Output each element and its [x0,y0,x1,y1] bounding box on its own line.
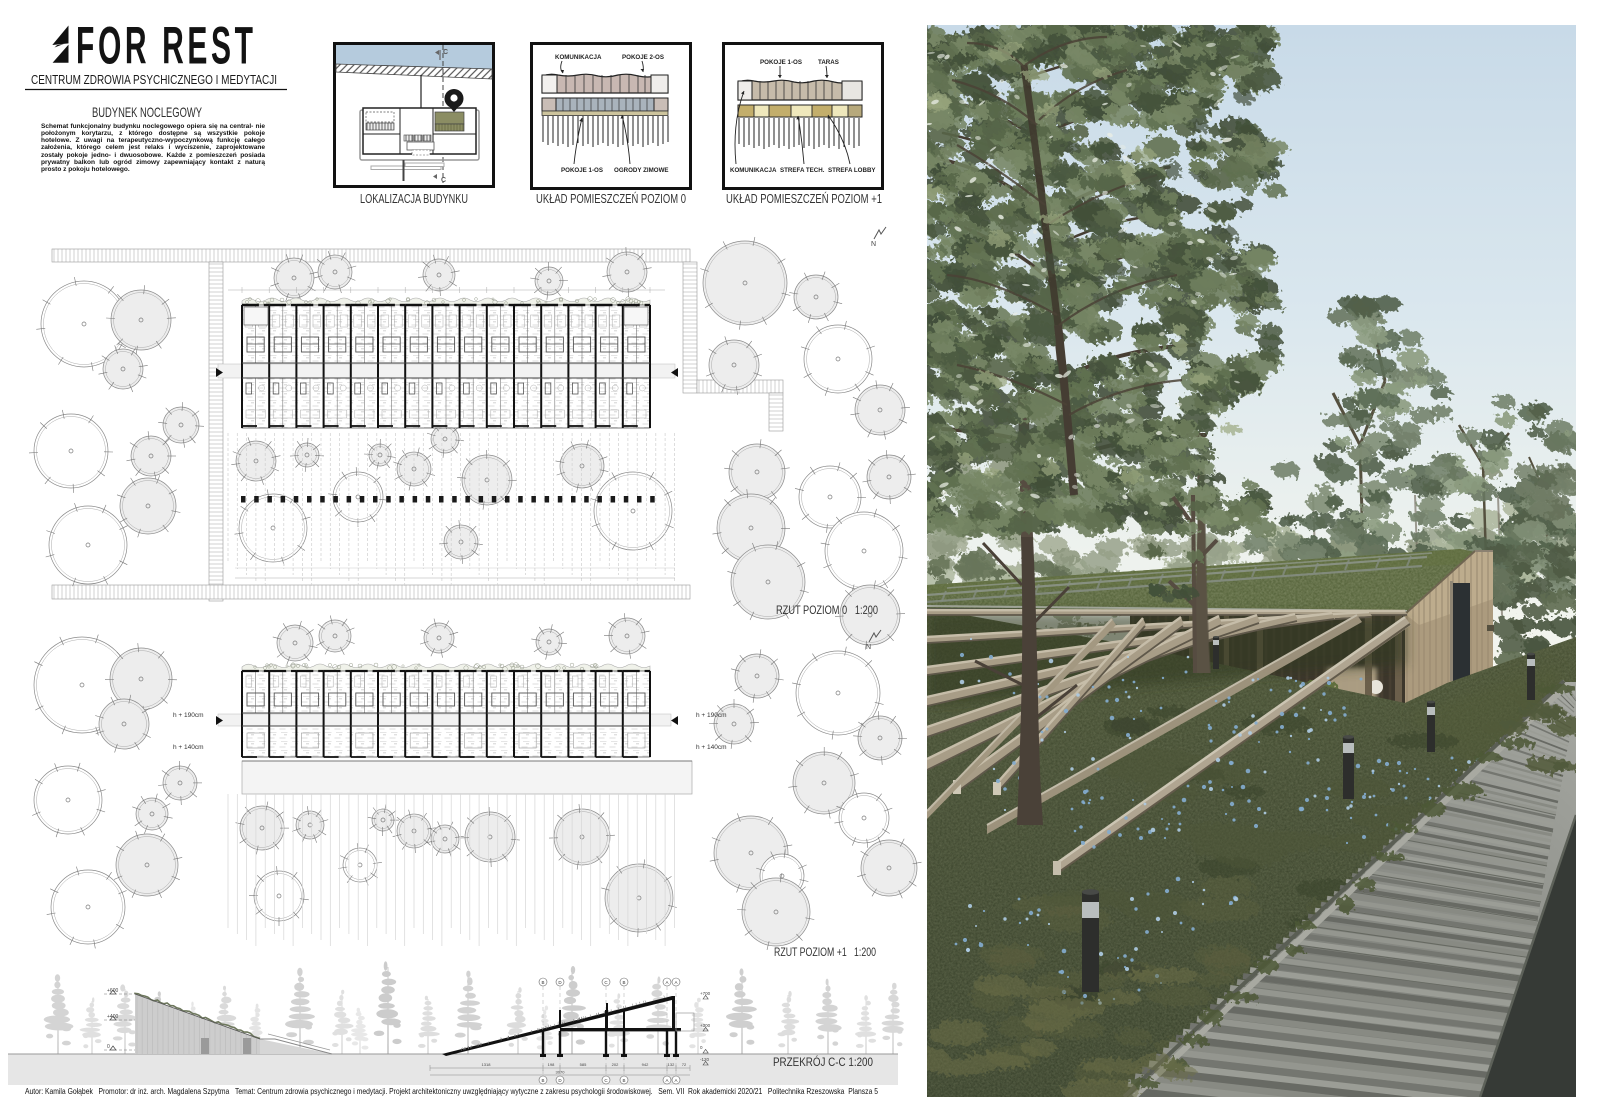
svg-text:LOKALIZACJA BUDYNKU: LOKALIZACJA BUDYNKU [360,192,468,206]
svg-text:202: 202 [612,1062,619,1067]
svg-text:FOR REST: FOR REST [76,17,253,76]
svg-text:A: A [665,980,668,985]
svg-text:132: 132 [668,1062,675,1067]
svg-text:B: B [622,980,625,985]
svg-text:BUDYNEK NOCLEGOWY: BUDYNEK NOCLEGOWY [92,104,202,120]
svg-text:72: 72 [682,1062,687,1067]
svg-text:PRZEKRÓJ C-C 1:200: PRZEKRÓJ C-C 1:200 [773,1054,873,1069]
svg-text:Autor: Kamila Gołąbek Promot: Autor: Kamila Gołąbek Promotor: dr inż. … [25,1086,878,1096]
svg-text:UKŁAD POMIESZCZEŃ POZIOM +1: UKŁAD POMIESZCZEŃ POZIOM +1 [726,191,882,206]
svg-text:POKOJE 2-OS: POKOJE 2-OS [622,54,664,61]
svg-text:TARAS: TARAS [818,59,839,66]
svg-text:POKOJE 1-OS: POKOJE 1-OS [760,59,802,66]
svg-text:B: B [541,980,544,985]
svg-text:+300: +300 [700,1023,711,1028]
svg-text:CENTRUM ZDROWIA PSYCHICZNEGO I: CENTRUM ZDROWIA PSYCHICZNEGO I MEDYTACJI [31,72,277,87]
svg-text:0: 0 [107,1044,110,1050]
svg-text:h + 190cm: h + 190cm [173,712,204,719]
svg-text:+700: +700 [700,991,711,996]
svg-text:h + 140cm: h + 140cm [173,744,204,751]
svg-text:C: C [441,177,446,184]
svg-text:RZUT POZIOM 0 1:200: RZUT POZIOM 0 1:200 [776,605,878,617]
svg-text:+600: +600 [107,988,118,994]
svg-text:UKŁAD POMIESZCZEŃ POZIOM 0: UKŁAD POMIESZCZEŃ POZIOM 0 [536,191,686,206]
svg-text:STREFA TECH.: STREFA TECH. [780,167,825,174]
svg-text:1318: 1318 [482,1062,492,1067]
svg-text:A: A [674,980,677,985]
svg-text:942: 942 [642,1062,649,1067]
svg-text:POKOJE 1-OS: POKOJE 1-OS [561,167,603,174]
svg-text:STREFA LOBBY: STREFA LOBBY [828,167,876,174]
svg-text:N: N [866,644,871,651]
svg-text:198: 198 [548,1062,555,1067]
svg-text:OGRODY ZIMOWE: OGRODY ZIMOWE [614,167,669,174]
svg-text:0: 0 [700,1045,703,1050]
svg-text:-120: -120 [700,1057,710,1062]
svg-text:3070: 3070 [556,1070,566,1075]
svg-text:+400: +400 [107,1014,118,1020]
svg-text:N: N [871,241,876,248]
svg-text:h + 190cm: h + 190cm [696,712,727,719]
svg-text:585: 585 [580,1062,587,1067]
svg-text:C: C [443,49,448,56]
svg-text:KOMUNIKACJA: KOMUNIKACJA [730,167,777,174]
svg-text:KOMUNIKACJA: KOMUNIKACJA [555,54,602,61]
svg-text:h + 140cm: h + 140cm [696,744,727,751]
